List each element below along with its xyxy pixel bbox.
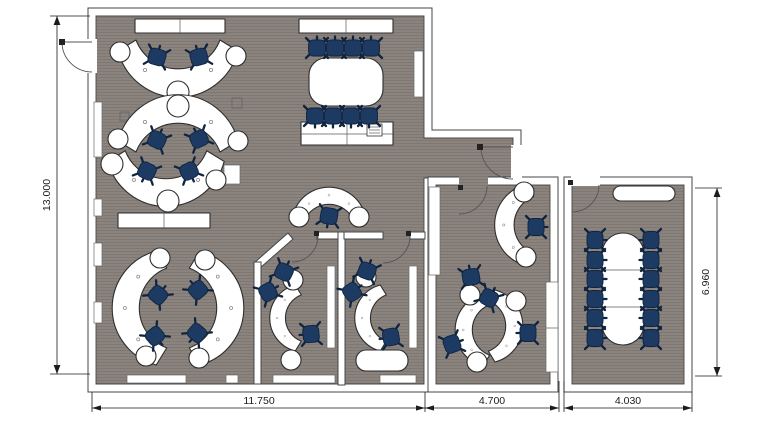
right-room-door-hinge (568, 180, 573, 185)
chair (526, 216, 548, 238)
chair (517, 322, 539, 344)
chair (585, 307, 607, 329)
office2-door-stop (406, 231, 411, 236)
conference-table (602, 233, 644, 345)
office1-top-wall (317, 232, 339, 239)
chair (640, 249, 662, 271)
meeting-area-main (304, 37, 383, 128)
middle-room-opening (459, 176, 488, 186)
floor-plan: 13.000 11.750 4.700 4.030 6.960 (0, 0, 768, 424)
baseboard-strip (380, 375, 416, 383)
vestibule-opening (511, 145, 522, 179)
office-divider-wall (338, 232, 345, 385)
chair (360, 37, 382, 59)
window-strip (94, 102, 102, 157)
chair (640, 229, 662, 251)
chair (585, 327, 607, 349)
chair (358, 106, 380, 128)
office2-wallboard (409, 266, 417, 348)
chair (585, 229, 607, 251)
chair (585, 268, 607, 290)
middle-room-door-hinge (458, 185, 463, 190)
window-strip (94, 199, 102, 216)
dim-overall-height: 13.000 (41, 179, 53, 211)
office1-door-stop (314, 231, 319, 236)
dim-right-room-width: 4.030 (615, 395, 641, 407)
office2-desk-return (356, 350, 408, 371)
chair (585, 249, 607, 271)
middle-room-wallboard-left (429, 187, 440, 275)
entrance-door-hinge (59, 39, 65, 45)
window-strip (94, 302, 102, 323)
office1-wallboard (327, 266, 335, 348)
chair (585, 288, 607, 310)
baseboard-strip (226, 375, 238, 383)
entrance-opening (85, 39, 97, 73)
dim-middle-room-width: 4.700 (479, 395, 505, 407)
baseboard-strip (127, 375, 186, 383)
chair (640, 327, 662, 349)
office1-left-wall (254, 262, 261, 384)
right-room-sideboard (613, 186, 675, 201)
baseboard-strip (273, 375, 335, 383)
chair (640, 288, 662, 310)
meeting-table (309, 58, 383, 106)
window-strip (94, 243, 102, 266)
dim-right-rooms-height: 6.960 (700, 269, 712, 295)
window-strip (414, 51, 423, 97)
dimension-left: 13.000 (41, 16, 90, 374)
chair (640, 268, 662, 290)
dim-main-width: 11.750 (243, 395, 274, 407)
right-room-opening (571, 176, 600, 186)
office2-top-wall-b (410, 232, 425, 239)
floor-plan-svg: 13.000 11.750 4.700 4.030 6.960 (0, 0, 768, 424)
office2-top-wall-a (344, 232, 383, 239)
chair (640, 307, 662, 329)
middle-room-wallboard-right (546, 282, 558, 372)
vestibule-door-hinge (477, 144, 483, 150)
dimension-right: 6.960 (695, 188, 722, 376)
